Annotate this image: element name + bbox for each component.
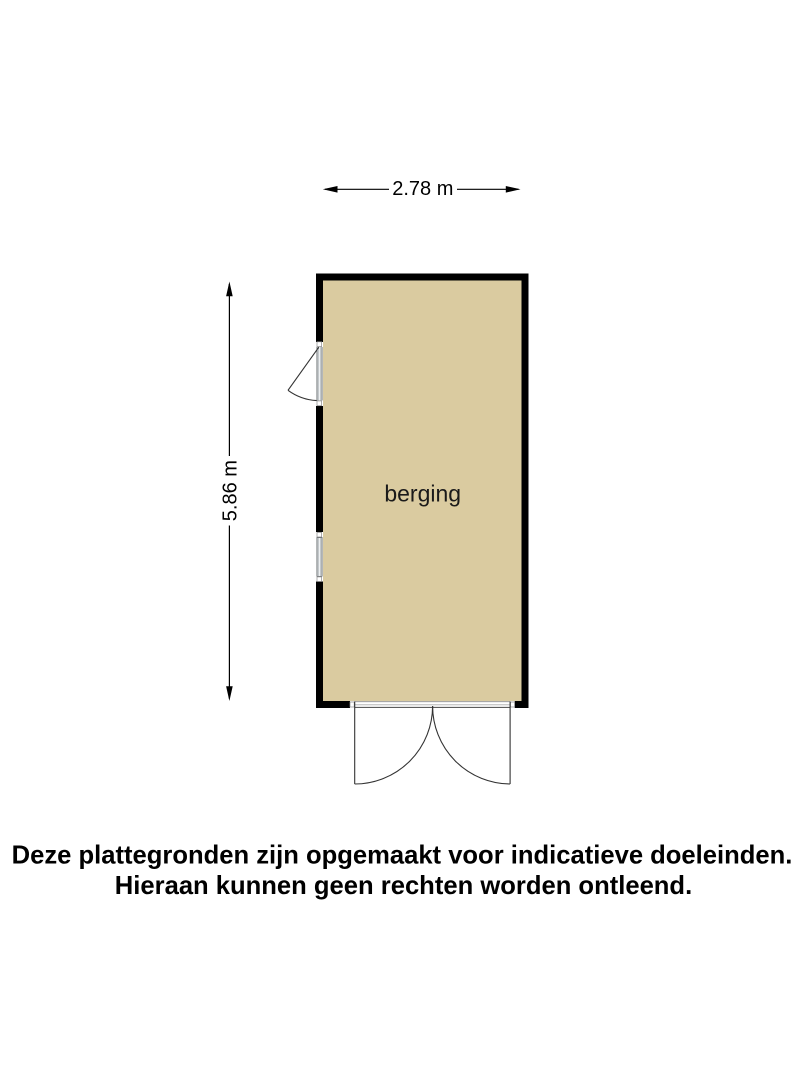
svg-text:Hieraan kunnen geen rechten wo: Hieraan kunnen geen rechten worden ontle… [115,872,692,900]
svg-text:5.86 m: 5.86 m [220,460,242,521]
svg-text:berging: berging [384,481,461,507]
svg-text:2.78 m: 2.78 m [392,178,453,200]
svg-text:Deze plattegronden zijn opgema: Deze plattegronden zijn opgemaakt voor i… [12,842,793,870]
